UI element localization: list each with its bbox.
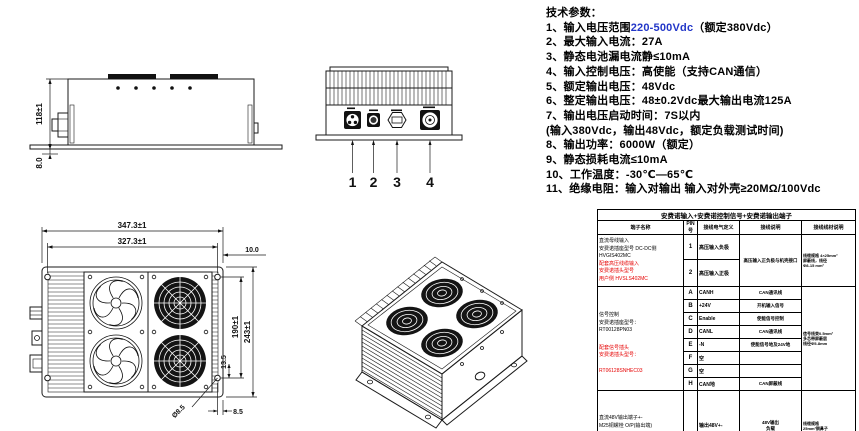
- spec-item-1: 1、输入电压范围220-500Vdc（额定380Vdc）: [546, 21, 858, 36]
- dim-hole-height: 190±1: [231, 315, 240, 338]
- spec-item-10: 10、工作温度：-30℃—65℃: [546, 168, 858, 183]
- signal-connector: [367, 113, 380, 127]
- pin-2: 2: [684, 260, 698, 287]
- side-view-drawing: 118±1 8.0: [18, 55, 298, 175]
- fan-strip: [108, 74, 156, 79]
- mounting-plate: [30, 145, 282, 149]
- iso-fan: [419, 326, 465, 361]
- pin-C: C: [684, 313, 698, 326]
- hv-note: 高压输入正负极与机壳接口: [740, 235, 802, 287]
- signal-name-cell: 信号控制 安费诺插座型号： RT00128PN03 配套信号插头 安费诺插头型号…: [598, 287, 684, 391]
- dim-hole-diameter: Ø8.5: [171, 404, 187, 420]
- fan-strip: [170, 74, 218, 79]
- pin-B-def: +24V: [698, 300, 740, 313]
- spec-item-5: 5、额定输出电压：48Vdc: [546, 80, 858, 95]
- pin-F-note: [740, 352, 802, 365]
- header-terminal-name: 端子名称: [598, 221, 684, 235]
- spec-item-7b: (输入380Vdc，输出48Vdc，额定负载测试时间): [546, 124, 858, 139]
- pin-A-def: CANH: [698, 287, 740, 300]
- datasheet-page: 118±1 8.0: [0, 0, 859, 431]
- pin-B-note: 开机输入信号: [740, 300, 802, 313]
- breather-valve: [388, 113, 406, 128]
- spec-item-8: 8、输出功率：6000W（额定）: [546, 138, 858, 153]
- signal-plug-model: RT06128SNHEC03: [599, 368, 682, 376]
- spec-item-7: 7、输出电压启动时间：7S以内: [546, 109, 858, 124]
- dim-edge-offset: 10.0: [245, 247, 259, 254]
- spec-item-11: 11、绝缘电阻：输入对输出 输入对外壳≥20MΩ/100Vdc: [546, 182, 858, 197]
- dim-hole-width: 327.3±1: [118, 237, 147, 246]
- pin-E-note: 使能信号地及24V地: [740, 339, 802, 352]
- dim-corner-offset: 8.5: [233, 409, 243, 416]
- label-mark: [423, 107, 435, 109]
- pin-H-note: CAN屏蔽线: [740, 378, 802, 391]
- callout-4: 4: [426, 174, 434, 190]
- header-wire: 接线线材说明: [802, 221, 856, 235]
- pin-1: 1: [684, 235, 698, 260]
- pin-G-note: [740, 365, 802, 378]
- pin-F-def: 空: [698, 352, 740, 365]
- top-view-drawing: 347.3±1 327.3±1 10.0 243±1 190±1 13.5 Ø8…: [20, 215, 300, 431]
- side-hole: [474, 371, 486, 382]
- callout-3: 3: [393, 174, 401, 190]
- specs-title: 技术参数：: [546, 6, 858, 21]
- pin-1-def: 高压输入负极: [698, 235, 740, 260]
- pin-output: [684, 391, 698, 431]
- terminal-table: 安费诺输入+安费诺控制信号+安费诺输出端子 端子名称 PIN号 接线电气定义 接…: [597, 209, 856, 431]
- iso-fan: [454, 297, 500, 332]
- heatsink-cap: [330, 67, 448, 71]
- pin-F: F: [684, 352, 698, 365]
- edge-connector: [30, 355, 42, 372]
- pin-B: B: [684, 300, 698, 313]
- label-mark: [369, 110, 378, 112]
- side-connector: [58, 113, 68, 137]
- pin-2-def: 高压输入正极: [698, 260, 740, 287]
- isometric-view-drawing: [330, 228, 540, 431]
- dim-overall-width: 347.3±1: [118, 221, 147, 230]
- pin-C-note: 使能信号控制: [740, 313, 802, 326]
- spec-1-prefix: 1、输入电压范围: [546, 22, 631, 34]
- fan-grill: [154, 277, 206, 329]
- signal-wire-spec: 信号线束0.5mm² 多芯带屏蔽层 线径Φ5-8mm: [802, 287, 856, 391]
- hv-input-name-cell: 直流母线输入 安费诺插座型号 DC-DC侧 HVGIS402MC 配套高压线缆输…: [598, 235, 684, 287]
- spec-1-suffix: （额定380Vdc）: [693, 22, 778, 34]
- dim-height-label: 118±1: [35, 103, 44, 125]
- front-flange: [316, 135, 462, 140]
- mount-hole: [45, 274, 51, 280]
- pin-D-def: CANL: [698, 326, 740, 339]
- label-mark: [391, 110, 402, 112]
- header-pin: PIN号: [684, 221, 698, 235]
- pin-A: A: [684, 287, 698, 300]
- output-note: 48V输出 负载: [740, 391, 802, 431]
- spec-item-4: 4、输入控制电压：高使能（支持CAN通信）: [546, 65, 858, 80]
- iso-fan: [419, 276, 465, 311]
- pin-D-note: CAN通讯线: [740, 326, 802, 339]
- pin-G-def: 空: [698, 365, 740, 378]
- flange-right: [442, 356, 527, 425]
- pin-G: G: [684, 365, 698, 378]
- edge-connector: [32, 331, 42, 345]
- output-connector: [420, 110, 440, 130]
- pin-E: E: [684, 339, 698, 352]
- dim-hole-bottom-offset: 13.5: [221, 355, 228, 369]
- spec-item-3: 3、静态电池漏电流静≤10mA: [546, 50, 858, 65]
- spec-item-2: 2、最大输入电流：27A: [546, 35, 858, 50]
- spec-item-6: 6、整定输出电压：48±0.2Vdc最大输出电流125A: [546, 94, 858, 109]
- header-definition: 接线电气定义: [698, 221, 740, 235]
- spec-item-9: 9、静态损耗电流≤10mA: [546, 153, 858, 168]
- enclosure-body: [68, 79, 254, 145]
- callout-2: 2: [370, 174, 378, 190]
- voltage-range-highlight: 220-500Vdc: [631, 22, 694, 34]
- callout-1: 1: [349, 174, 357, 190]
- hv-wire-spec: 线缆规格 4×25mm² 屏蔽线，线径 Φ8-15 mm²: [802, 235, 856, 287]
- tech-specs: 技术参数： 1、输入电压范围220-500Vdc（额定380Vdc） 2、最大输…: [546, 6, 858, 197]
- output-wire-spec: 线缆规格 25mm²铜鼻子: [802, 391, 856, 431]
- pin-E-def: -N: [698, 339, 740, 352]
- top-face: [362, 262, 522, 374]
- output-name-cell: 直流48V输出端子+- M25铜螺栓 O/P(输出端) 3: [598, 391, 684, 431]
- table-title: 安费诺输入+安费诺控制信号+安费诺输出端子: [598, 210, 856, 221]
- fan-grill: [154, 335, 206, 387]
- output-def: 输出48V+-: [698, 391, 740, 431]
- pin-H-def: CAN地: [698, 378, 740, 391]
- iso-fan: [384, 304, 430, 339]
- dim-overall-height: 243±1: [243, 320, 252, 343]
- pin-A-note: CAN通讯线: [740, 287, 802, 300]
- edge-connector: [30, 307, 42, 319]
- pin-C-def: Enable: [698, 313, 740, 326]
- dim-flange-label: 8.0: [35, 157, 44, 169]
- label-mark: [347, 108, 355, 110]
- hv-input-connector: [344, 111, 361, 129]
- mount-hole: [45, 375, 51, 381]
- header-note: 接线说明: [740, 221, 802, 235]
- pin-D: D: [684, 326, 698, 339]
- mount-hole: [215, 274, 221, 280]
- front-view-drawing: 1 2 3 4: [300, 55, 520, 195]
- pin-H: H: [684, 378, 698, 391]
